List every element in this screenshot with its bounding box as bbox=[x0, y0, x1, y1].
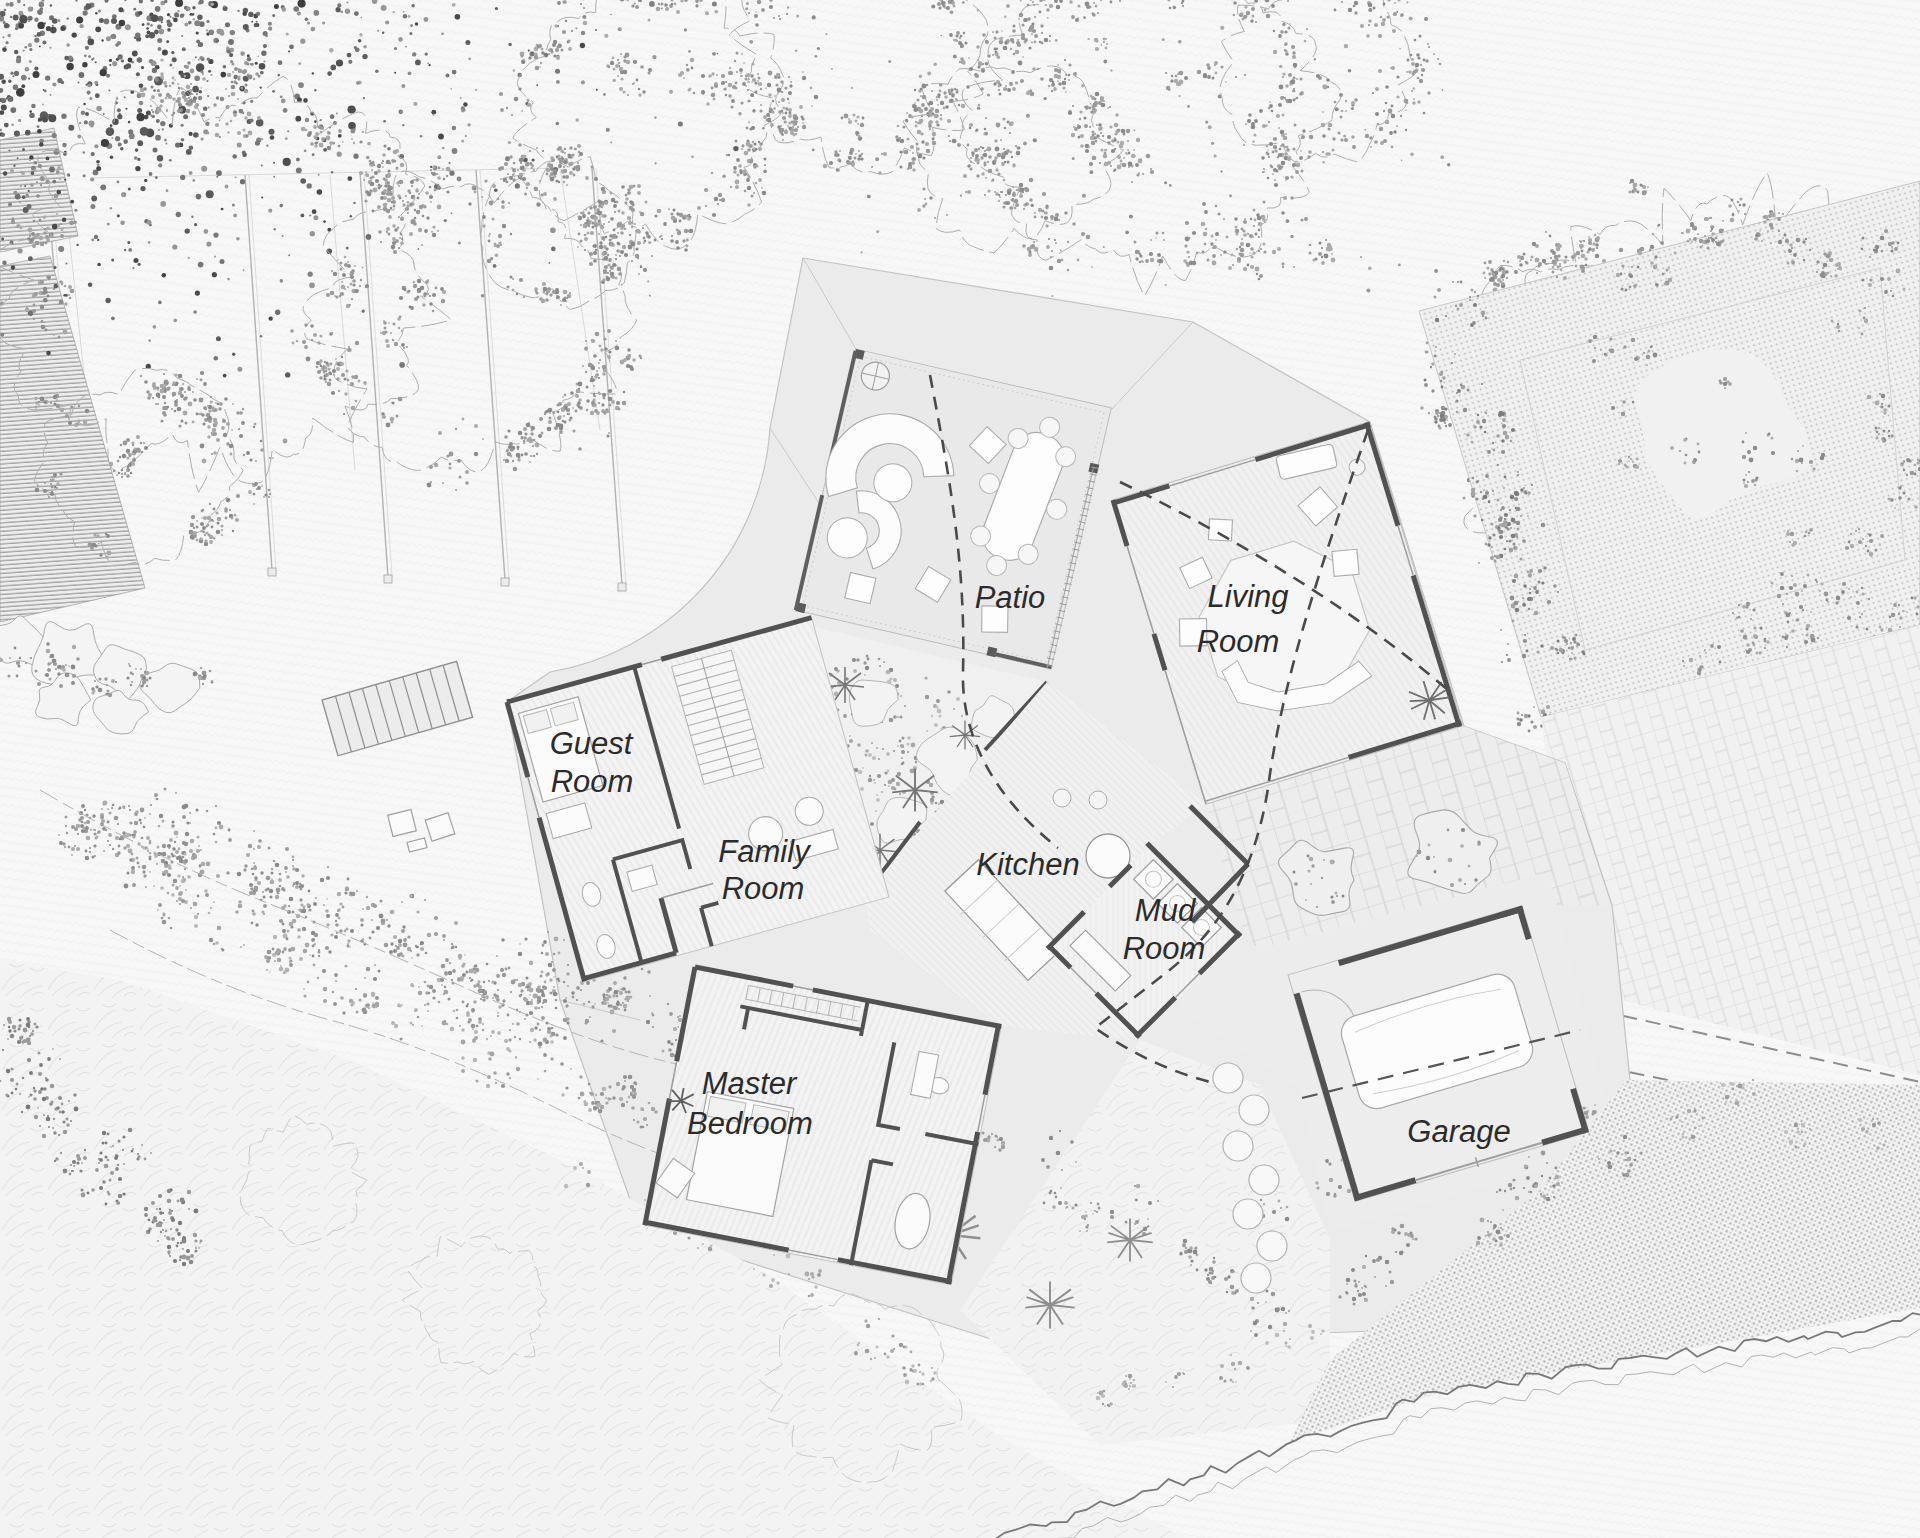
svg-text:Room: Room bbox=[551, 764, 634, 799]
svg-text:Guest: Guest bbox=[550, 726, 634, 761]
svg-text:Family: Family bbox=[718, 834, 812, 869]
svg-text:Room: Room bbox=[1123, 931, 1206, 966]
svg-text:Mud: Mud bbox=[1135, 893, 1197, 928]
svg-text:Living: Living bbox=[1208, 579, 1289, 614]
svg-text:Room: Room bbox=[722, 871, 805, 906]
svg-text:Kitchen: Kitchen bbox=[976, 847, 1079, 882]
svg-text:Master: Master bbox=[702, 1066, 798, 1101]
svg-text:Bedroom: Bedroom bbox=[687, 1106, 813, 1141]
svg-text:Patio: Patio bbox=[975, 580, 1046, 615]
svg-text:Room: Room bbox=[1197, 624, 1280, 659]
svg-text:Garage: Garage bbox=[1407, 1114, 1510, 1149]
